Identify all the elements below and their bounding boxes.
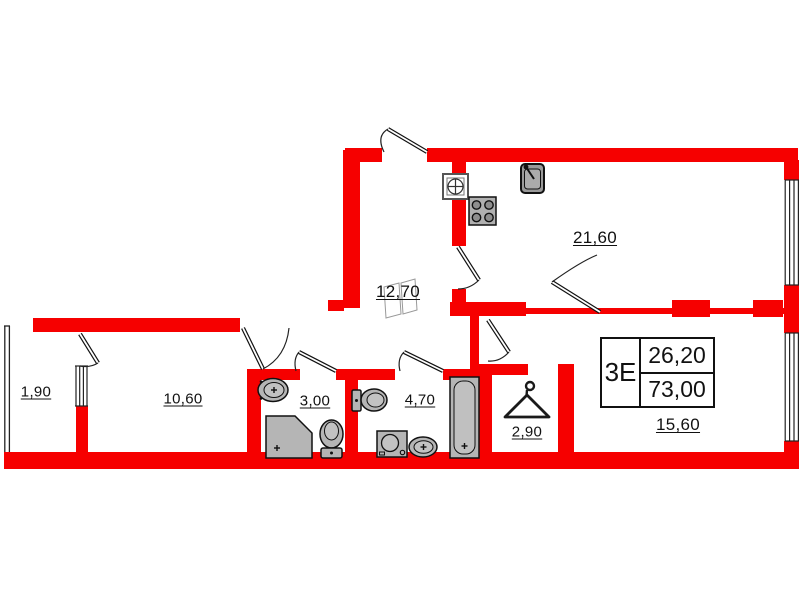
window-balcony-left [4, 326, 10, 452]
living-room-door [552, 255, 600, 312]
room-area-label-wardrobe: 2,90 [512, 424, 542, 441]
ventilation-icon [443, 174, 468, 199]
room-area-label-bottom-room: 15,60 [656, 415, 700, 435]
entrance-door [381, 129, 427, 152]
room-area-label-hallway: 12,70 [376, 282, 420, 302]
sink-icon [258, 379, 288, 402]
bathroom-door [399, 352, 443, 371]
toilet-icon [352, 389, 387, 411]
toilet-icon [320, 420, 343, 458]
window-balcony-inner [75, 366, 88, 406]
bathroom-small-door [295, 352, 336, 371]
kitchen-sink-icon [521, 164, 544, 193]
bathtub-icon [450, 377, 479, 458]
unit-type-label: 3Е [602, 339, 641, 406]
window-right-upper [785, 180, 799, 285]
sink-icon [409, 437, 437, 457]
washing-machine-icon [377, 431, 407, 457]
bottom-room-door [488, 320, 509, 361]
unit-info-box: 3Е 26,20 73,00 [600, 337, 715, 408]
room-area-label-bedroom: 10,60 [163, 391, 202, 408]
hanger-icon [505, 382, 549, 417]
kitchen-door [458, 247, 479, 289]
balcony-door [80, 334, 98, 367]
room-area-label-balcony: 1,90 [21, 384, 51, 401]
room-area-label-bathroom-small: 3,00 [300, 393, 330, 410]
window-right-lower [785, 333, 799, 441]
bedroom-door [243, 328, 289, 369]
room-area-label-living: 21,60 [573, 228, 617, 248]
unit-area-living: 26,20 [641, 339, 713, 374]
room-area-label-bathroom: 4,70 [405, 392, 435, 409]
stove-icon [469, 197, 496, 225]
floor-plan: 1,90 10,60 3,00 4,70 2,90 12,70 21,60 15… [0, 0, 800, 600]
unit-area-total: 73,00 [641, 374, 713, 407]
shower-icon [266, 416, 312, 458]
